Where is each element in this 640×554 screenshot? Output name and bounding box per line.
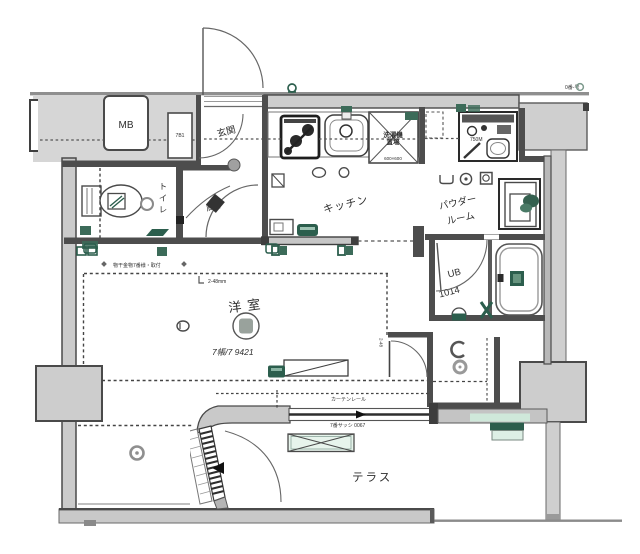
svg-text:カーテンレール: カーテンレール: [331, 397, 366, 403]
svg-text:7B1: 7B1: [176, 133, 185, 139]
svg-text:MB: MB: [119, 120, 134, 131]
svg-text:2-48mm: 2-48mm: [208, 279, 226, 285]
svg-text:テラス: テラス: [352, 472, 392, 484]
svg-text:750M: 750M: [470, 137, 483, 143]
svg-text:600×600: 600×600: [384, 156, 402, 161]
svg-text:2-48: 2-48: [379, 338, 384, 348]
svg-text:7帳/7 9421: 7帳/7 9421: [212, 347, 254, 357]
svg-text:7番サッシ 0067: 7番サッシ 0067: [330, 422, 366, 429]
svg-text:物干金物7番様・取付: 物干金物7番様・取付: [113, 262, 161, 269]
svg-text:洗濯機: 洗濯機: [383, 130, 403, 139]
svg-text:トイレ: トイレ: [158, 182, 168, 217]
